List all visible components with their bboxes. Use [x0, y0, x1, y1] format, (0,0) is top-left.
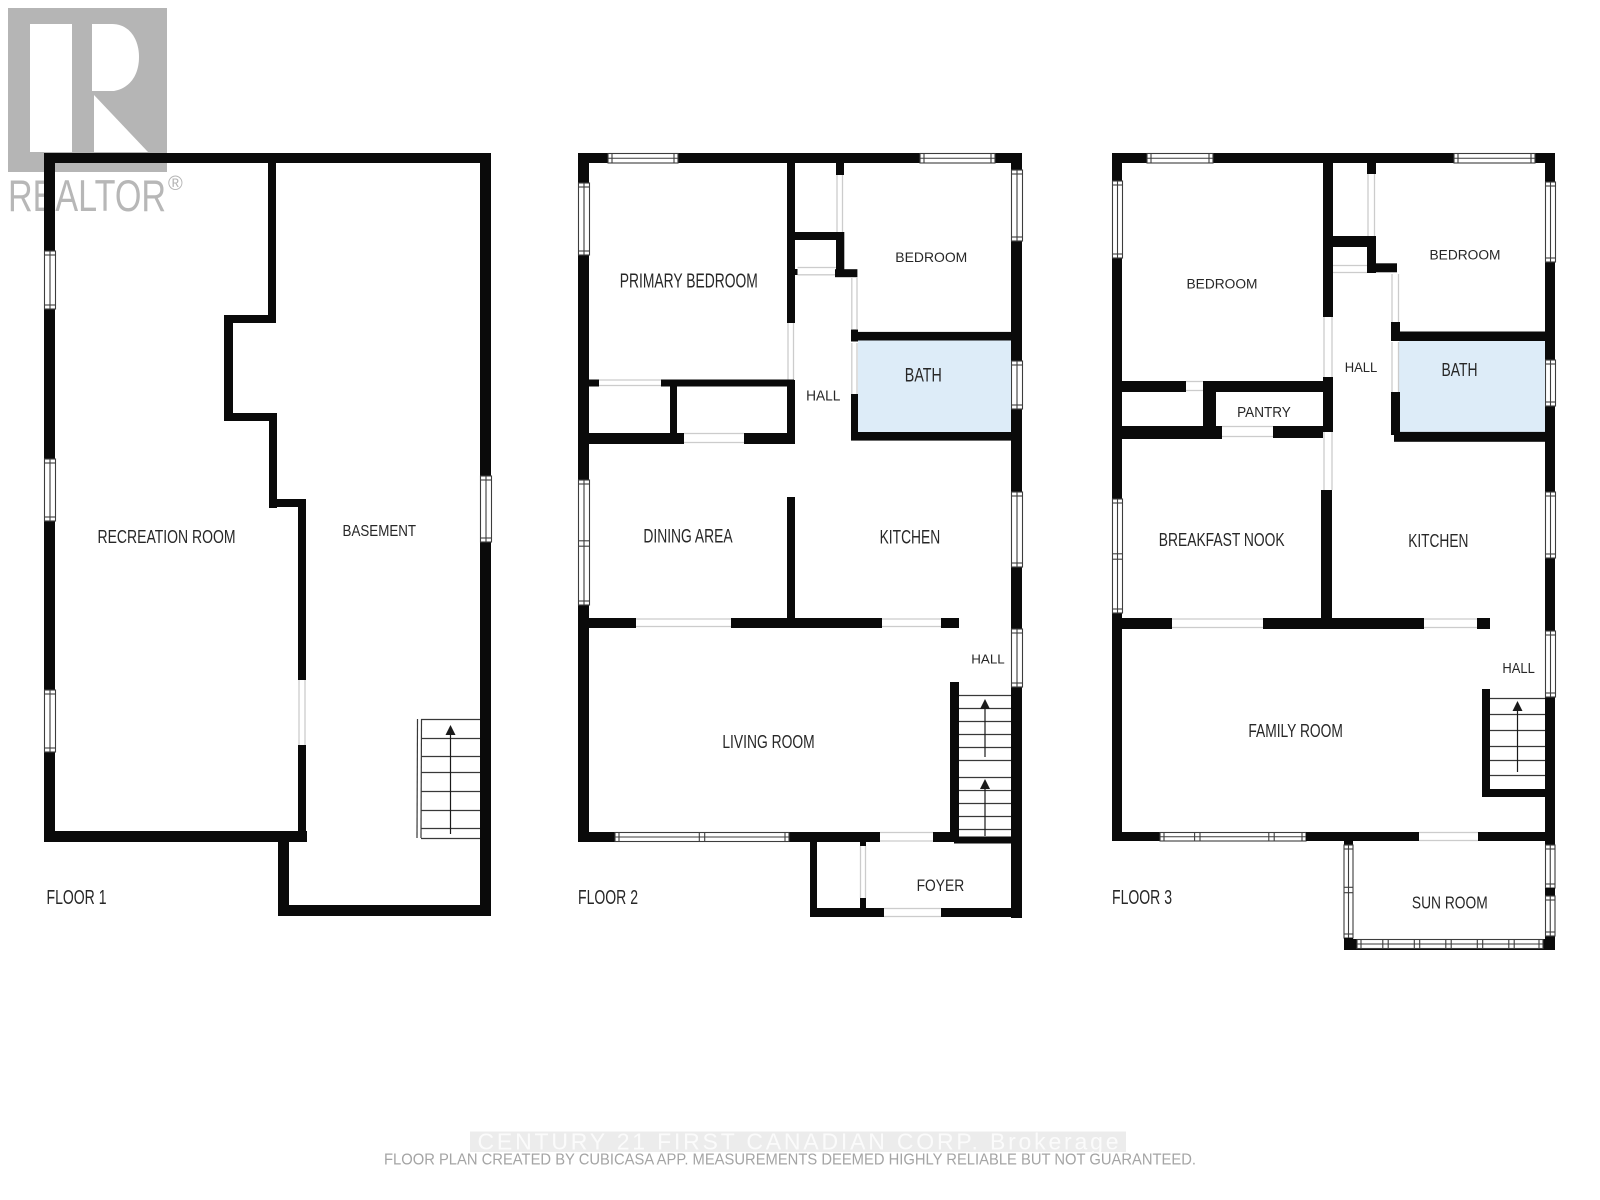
svg-text:BREAKFAST NOOK: BREAKFAST NOOK — [1159, 529, 1285, 550]
svg-text:REALTOR: REALTOR — [8, 172, 166, 221]
svg-text:BASEMENT: BASEMENT — [343, 523, 417, 540]
svg-text:HALL: HALL — [806, 389, 840, 405]
svg-text:KITCHEN: KITCHEN — [880, 528, 941, 549]
svg-text:FOYER: FOYER — [917, 876, 965, 895]
svg-text:BEDROOM: BEDROOM — [1187, 276, 1258, 292]
svg-text:SUN ROOM: SUN ROOM — [1412, 893, 1488, 913]
svg-text:BATH: BATH — [1442, 360, 1478, 380]
svg-text:HALL: HALL — [1345, 359, 1378, 375]
svg-text:®: ® — [168, 173, 183, 195]
svg-text:BEDROOM: BEDROOM — [1430, 247, 1501, 263]
svg-text:FLOOR PLAN CREATED BY CUBICASA: FLOOR PLAN CREATED BY CUBICASA APP. MEAS… — [384, 1152, 1196, 1169]
svg-text:FAMILY ROOM: FAMILY ROOM — [1248, 720, 1343, 741]
svg-text:FLOOR 1: FLOOR 1 — [47, 887, 107, 909]
svg-text:RECREATION ROOM: RECREATION ROOM — [98, 526, 236, 547]
svg-text:KITCHEN: KITCHEN — [1408, 530, 1468, 551]
svg-text:PRIMARY BEDROOM: PRIMARY BEDROOM — [620, 271, 758, 293]
svg-text:FLOOR 2: FLOOR 2 — [578, 887, 638, 909]
svg-text:BEDROOM: BEDROOM — [895, 249, 967, 265]
svg-text:FLOOR 3: FLOOR 3 — [1112, 887, 1172, 909]
svg-text:BATH: BATH — [905, 366, 942, 387]
svg-text:LIVING ROOM: LIVING ROOM — [722, 731, 814, 752]
svg-text:HALL: HALL — [971, 652, 1004, 667]
svg-text:PANTRY: PANTRY — [1237, 405, 1291, 421]
svg-text:HALL: HALL — [1502, 661, 1534, 677]
svg-text:DINING AREA: DINING AREA — [643, 527, 733, 548]
